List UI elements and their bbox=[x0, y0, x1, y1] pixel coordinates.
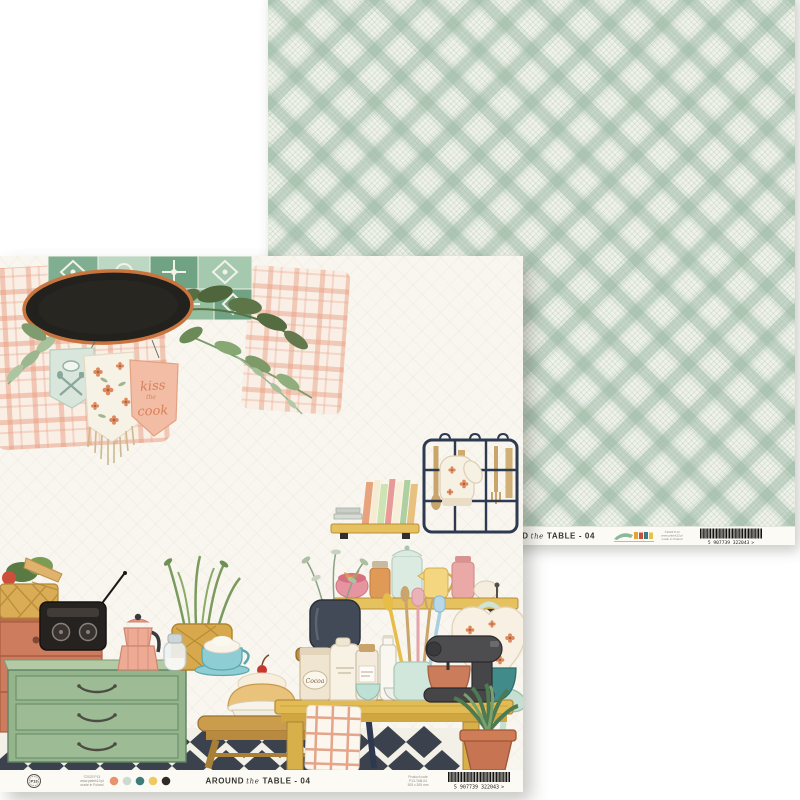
collection-title: AROUNDtheTABLE - 04 bbox=[205, 777, 310, 786]
color-swatches bbox=[110, 777, 171, 786]
front-paper-sheet: kiss the cook bbox=[0, 256, 523, 792]
swatch-orange bbox=[110, 777, 119, 786]
product-code-lines: Product code P13-TAB-04 305 x 305 mm bbox=[408, 775, 429, 787]
back-barcode-number: 5 907739 322043> bbox=[708, 540, 755, 545]
svg-text:made in Poland: made in Poland bbox=[81, 783, 104, 787]
kitchen-illustration: kiss the cook bbox=[0, 256, 523, 770]
product-photo: AROUNDtheTABLE - 04 ©2023 P13 www.piatek… bbox=[0, 0, 800, 800]
p13-logo-text: P13 bbox=[30, 779, 38, 784]
front-footer-strip: P13 ©2023 P13 www.piatek13.pl made in Po… bbox=[0, 770, 523, 792]
front-sheet-footer: P13 ©2023 P13 www.piatek13.pl made in Po… bbox=[0, 770, 523, 792]
front-imprint: ©2023 P13 www.piatek13.pl made in Poland bbox=[80, 775, 104, 787]
front-barcode: 5 907739 322043> bbox=[448, 772, 510, 791]
cocoa-bag: Cocoa bbox=[300, 648, 330, 700]
svg-text:305 x 305 mm: 305 x 305 mm bbox=[408, 783, 429, 787]
banner-word-cook: cook bbox=[137, 403, 169, 420]
utensil-rack bbox=[424, 434, 517, 532]
p13-wordmark-logo bbox=[614, 532, 654, 542]
book-shelf bbox=[331, 479, 419, 539]
green-chest bbox=[4, 660, 190, 762]
radio bbox=[40, 571, 127, 650]
banner-word-kiss: kiss bbox=[140, 378, 167, 395]
oven-mitt bbox=[440, 456, 486, 506]
swatch-teal bbox=[136, 777, 145, 786]
banner-word-the: the bbox=[146, 394, 156, 401]
front-barcode-number: 5 907739 322043> bbox=[454, 785, 504, 791]
plaid-towel bbox=[305, 705, 361, 770]
back-imprint: ©2023 P13 www.piatek13.pl made in Poland bbox=[661, 530, 683, 541]
cocoa-label: Cocoa bbox=[306, 678, 325, 685]
p13-stamp-logo: P13 bbox=[28, 775, 41, 788]
svg-text:made in Poland: made in Poland bbox=[662, 537, 683, 541]
back-barcode: 5 907739 322043> bbox=[700, 529, 762, 546]
swatch-yellow bbox=[149, 777, 158, 786]
swatch-mint bbox=[123, 777, 132, 786]
swatch-black bbox=[162, 777, 171, 786]
jar-shelf bbox=[333, 546, 518, 622]
stand-mixer bbox=[424, 636, 516, 702]
moka-pot bbox=[118, 614, 159, 670]
